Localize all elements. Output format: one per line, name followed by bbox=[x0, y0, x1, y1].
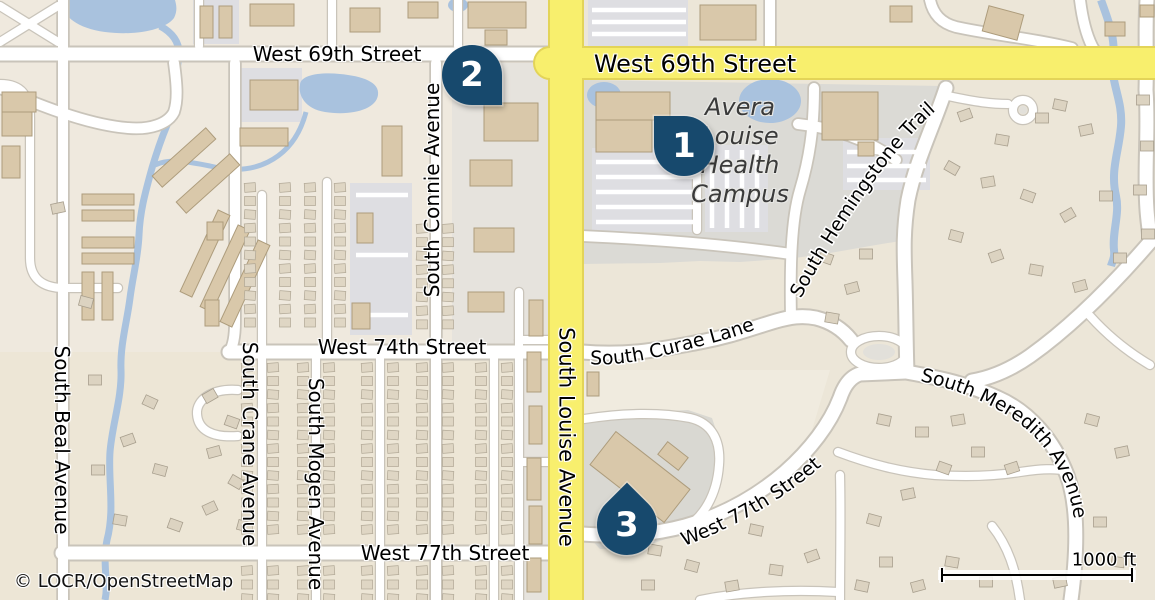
scale-bar-label: 1000 ft bbox=[1072, 550, 1137, 571]
map-viewport[interactable]: South Curae Lane South Hemingstone Trail… bbox=[0, 0, 1155, 600]
map-pin-1[interactable]: 1 bbox=[654, 116, 714, 176]
attribution-text: © LOCR/OpenStreetMap bbox=[14, 571, 233, 592]
pin-number: 3 bbox=[615, 505, 639, 545]
map-graphics: South Curae Lane South Hemingstone Trail… bbox=[0, 0, 1155, 600]
pin-number: 2 bbox=[460, 55, 484, 95]
pin-number: 1 bbox=[672, 126, 696, 166]
map-pin-2[interactable]: 2 bbox=[442, 45, 502, 105]
